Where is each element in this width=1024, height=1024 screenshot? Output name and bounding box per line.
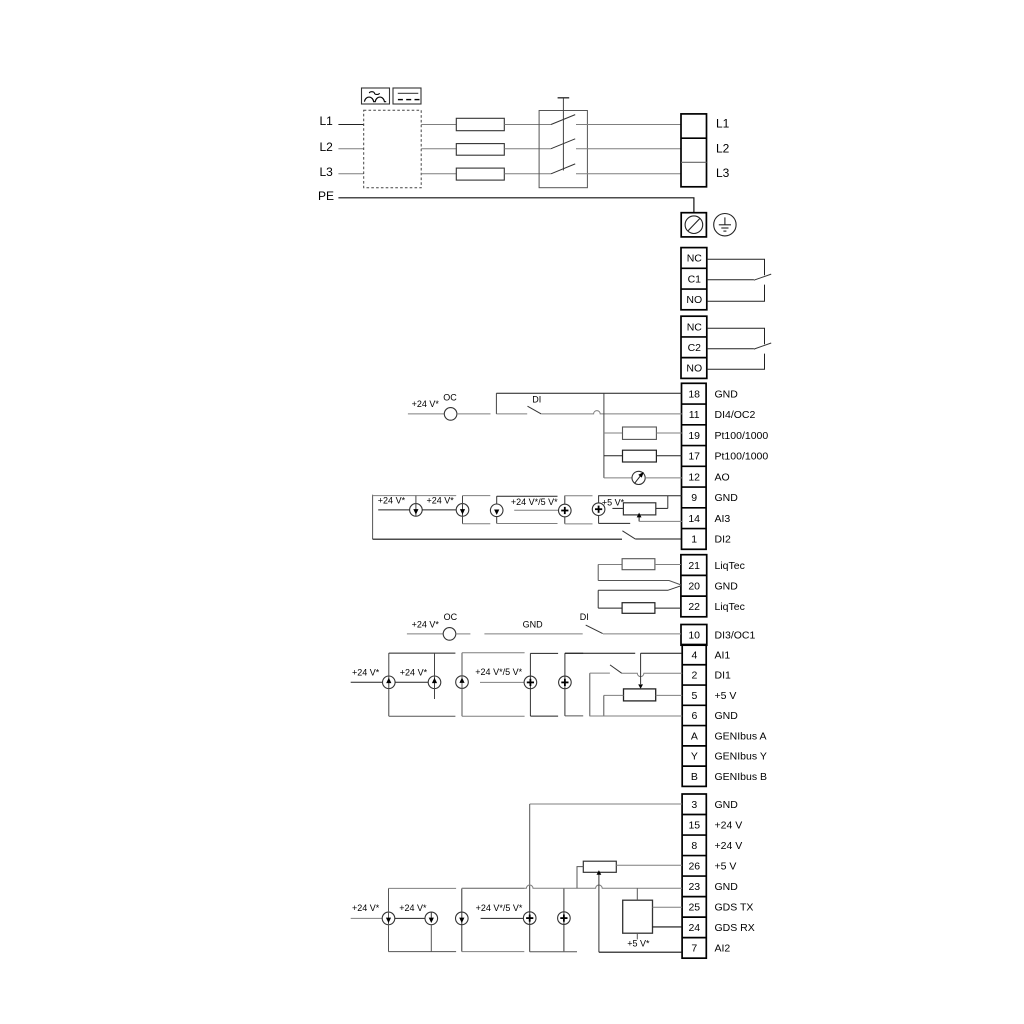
- svg-text:23: 23: [688, 881, 700, 893]
- svg-text:L1: L1: [716, 117, 730, 131]
- svg-text:+24 V*: +24 V*: [400, 668, 428, 678]
- svg-text:AI1: AI1: [715, 649, 731, 661]
- svg-text:GND: GND: [715, 799, 739, 811]
- svg-text:10: 10: [688, 630, 700, 642]
- svg-text:C2: C2: [688, 342, 702, 354]
- svg-text:+5 V: +5 V: [715, 861, 737, 873]
- svg-text:+24 V*: +24 V*: [352, 668, 380, 678]
- svg-text:14: 14: [688, 513, 700, 525]
- svg-text:Y: Y: [691, 751, 698, 763]
- svg-text:24: 24: [688, 922, 700, 934]
- svg-text:GND: GND: [715, 580, 739, 592]
- svg-text:1: 1: [691, 534, 697, 546]
- svg-text:9: 9: [691, 492, 697, 504]
- svg-text:GND: GND: [715, 881, 739, 893]
- svg-text:+24 V*: +24 V*: [399, 903, 427, 913]
- svg-text:B: B: [691, 771, 698, 783]
- svg-text:22: 22: [688, 601, 700, 613]
- svg-text:C1: C1: [688, 273, 702, 285]
- svg-text:21: 21: [688, 560, 700, 572]
- svg-text:+24 V*/5 V*: +24 V*/5 V*: [511, 497, 558, 507]
- svg-text:GDS RX: GDS RX: [715, 922, 755, 934]
- svg-text:+24 V*: +24 V*: [378, 496, 406, 506]
- svg-text:GENIbus A: GENIbus A: [715, 730, 767, 742]
- svg-text:GDS TX: GDS TX: [715, 902, 754, 914]
- svg-text:GND: GND: [523, 619, 544, 629]
- svg-text:Pt100/1000: Pt100/1000: [715, 430, 769, 442]
- svg-text:17: 17: [688, 451, 700, 463]
- svg-text:18: 18: [688, 388, 700, 400]
- svg-text:AI2: AI2: [715, 943, 731, 955]
- svg-text:8: 8: [691, 840, 697, 852]
- svg-text:L3: L3: [716, 166, 730, 180]
- svg-text:LiqTec: LiqTec: [715, 560, 745, 572]
- svg-text:LiqTec: LiqTec: [715, 601, 745, 613]
- svg-text:26: 26: [688, 861, 700, 873]
- svg-text:+24 V*: +24 V*: [412, 399, 440, 409]
- svg-text:+24 V: +24 V: [715, 840, 743, 852]
- svg-text:DI3/OC1: DI3/OC1: [715, 630, 756, 642]
- svg-text:7: 7: [691, 943, 697, 955]
- svg-text:+24 V*: +24 V*: [352, 903, 380, 913]
- svg-text:15: 15: [688, 819, 700, 831]
- svg-text:3: 3: [691, 799, 697, 811]
- svg-text:+5 V: +5 V: [715, 690, 737, 702]
- svg-text:+5 V*: +5 V*: [627, 938, 650, 948]
- svg-text:DI4/OC2: DI4/OC2: [715, 409, 756, 421]
- svg-text:L1: L1: [320, 114, 334, 128]
- svg-text:NC: NC: [687, 253, 703, 265]
- svg-text:L2: L2: [716, 141, 730, 155]
- svg-text:A: A: [691, 730, 698, 742]
- svg-text:+24 V*/5 V*: +24 V*/5 V*: [475, 667, 522, 677]
- svg-text:5: 5: [691, 690, 697, 702]
- svg-text:DI2: DI2: [715, 534, 732, 546]
- svg-text:+5 V*: +5 V*: [602, 497, 625, 507]
- svg-text:2: 2: [691, 670, 697, 682]
- svg-text:DI1: DI1: [715, 670, 732, 682]
- svg-text:19: 19: [688, 430, 700, 442]
- svg-text:GND: GND: [715, 710, 739, 722]
- svg-text:PE: PE: [318, 189, 334, 203]
- svg-text:L3: L3: [320, 165, 334, 179]
- svg-text:+24 V*/5 V*: +24 V*/5 V*: [476, 903, 523, 913]
- svg-text:20: 20: [688, 580, 700, 592]
- svg-text:GENIbus Y: GENIbus Y: [715, 751, 767, 763]
- svg-text:NC: NC: [687, 321, 703, 333]
- svg-text:NO: NO: [686, 294, 702, 306]
- svg-text:OC: OC: [444, 612, 458, 622]
- svg-text:AI3: AI3: [715, 513, 731, 525]
- svg-text:NO: NO: [686, 363, 702, 375]
- svg-text:OC: OC: [443, 392, 457, 402]
- svg-text:+24 V*: +24 V*: [427, 496, 455, 506]
- svg-text:+24 V*: +24 V*: [412, 619, 440, 629]
- svg-text:4: 4: [691, 649, 697, 661]
- svg-text:Pt100/1000: Pt100/1000: [715, 451, 769, 463]
- svg-text:25: 25: [688, 902, 700, 914]
- svg-text:GND: GND: [715, 388, 739, 400]
- svg-text:L2: L2: [320, 140, 334, 154]
- svg-text:12: 12: [688, 471, 700, 483]
- svg-text:6: 6: [691, 710, 697, 722]
- svg-text:AO: AO: [715, 471, 730, 483]
- svg-text:GND: GND: [715, 492, 739, 504]
- svg-text:11: 11: [689, 409, 700, 421]
- svg-text:GENIbus B: GENIbus B: [715, 771, 768, 783]
- svg-text:DI: DI: [532, 395, 541, 405]
- svg-text:DI: DI: [580, 612, 589, 622]
- svg-text:+24 V: +24 V: [715, 819, 743, 831]
